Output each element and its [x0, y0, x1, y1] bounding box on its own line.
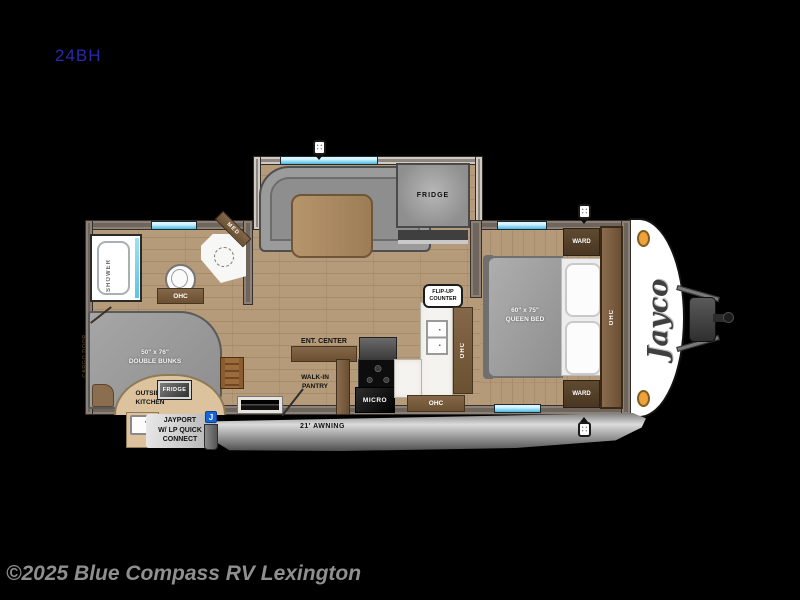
slideout-wall-right [475, 156, 483, 230]
propane-tank-box [689, 297, 716, 342]
dinette-table [291, 194, 373, 258]
bed-name: QUEEN BED [487, 315, 563, 324]
jayport-icon: J [205, 411, 217, 423]
bunks-name: DOUBLE BUNKS [90, 357, 220, 366]
floorplan-screenshot: { "meta": { "model": "24BH", "copyright"… [0, 0, 800, 600]
bunk-ladder [221, 358, 243, 388]
pillow-top [565, 263, 601, 317]
shower-pan [97, 241, 130, 295]
wardrobe-top: WARD [563, 228, 600, 256]
pillow-bottom [565, 321, 601, 375]
range-hood [359, 337, 397, 360]
bunks-label: 50" x 76" DOUBLE BUNKS [90, 348, 220, 366]
kitchen-ohc-side: OHC [453, 307, 473, 394]
bedroom-ohc: OHC [600, 226, 623, 409]
wall-bedroom-divider [470, 220, 482, 298]
wardrobe-bottom: WARD [563, 380, 600, 408]
microwave: MICRO [355, 387, 395, 413]
page-title: 24BH [55, 46, 102, 66]
flip-up-counter-callout: FLIP-UP COUNTER [423, 284, 463, 308]
jayco-logo: Jayco [643, 259, 671, 379]
exterior-speaker-pointer-slideout [315, 155, 323, 160]
shower: SHOWER [90, 234, 142, 302]
marker-light-bottom [637, 390, 650, 407]
slideout-fridge: FRIDGE [396, 163, 470, 228]
outside-kitchen-fridge-label: FRIDGE [163, 387, 187, 393]
exterior-speaker-icon-bedroom-top [578, 204, 591, 219]
awning-label: 21' AWNING [300, 423, 345, 430]
bunk-pad [92, 384, 114, 407]
jayport-post [204, 424, 218, 450]
outside-kitchen-line2: KITCHEN [124, 399, 176, 408]
cooktop [358, 359, 398, 388]
microwave-label: MICRO [363, 397, 387, 404]
flip-up-line2: COUNTER [429, 296, 456, 303]
queen-bed-bedding [561, 258, 602, 376]
bed-size: 60" x 75" [487, 306, 563, 315]
window-bedroom-bottom [494, 404, 541, 413]
wardrobe-bottom-label: WARD [572, 391, 590, 397]
kitchen-counter-corner [394, 359, 422, 398]
bunks-size: 50" x 76" [90, 348, 220, 357]
exterior-speaker-icon-slideout [313, 140, 326, 155]
kitchen-ohc-bottom-label: OHC [429, 400, 443, 407]
jayport-icon-letter: J [209, 413, 213, 422]
window-bathroom [151, 221, 197, 230]
queen-bed-label: 60" x 75" QUEEN BED [487, 306, 563, 324]
entry-steps-treads [241, 400, 279, 410]
bathroom-ohc-label: OHC [173, 293, 187, 300]
outside-kitchen-fridge: FRIDGE [158, 381, 191, 399]
pantry-label: WALK-IN PANTRY [291, 374, 339, 391]
ent-center-label: ENT. CENTER [288, 338, 360, 345]
kitchen-sink [426, 320, 448, 355]
pantry-line1: WALK-IN [291, 374, 339, 383]
entry-steps [237, 396, 283, 414]
kitchen-ohc-side-label: OHC [460, 342, 466, 358]
wardrobe-top-label: WARD [572, 239, 590, 245]
hitch-ball [723, 312, 734, 323]
copyright-watermark: ©2025 Blue Compass RV Lexington [6, 562, 361, 586]
shower-glass [135, 238, 139, 298]
flip-up-line1: FLIP-UP [432, 289, 453, 296]
slideout-fridge-base [398, 230, 468, 244]
bedroom-ohc-label: OHC [609, 309, 615, 325]
window-bedroom-top [497, 221, 547, 230]
marker-light-top [637, 230, 650, 247]
exterior-speaker-icon-bedroom-bottom [578, 422, 591, 437]
window-slideout [280, 156, 378, 165]
shower-label: SHOWER [106, 248, 112, 292]
toilet-seat [171, 269, 188, 288]
pantry-line2: PANTRY [291, 383, 339, 392]
bathroom-ohc: OHC [157, 288, 204, 304]
exterior-speaker-pointer-bedroom-top [580, 219, 588, 224]
cargo-door-label: CARGO DOOR [82, 326, 90, 386]
kitchen-ohc-bottom: OHC [407, 395, 465, 412]
corner-sink-bowl [214, 247, 234, 267]
